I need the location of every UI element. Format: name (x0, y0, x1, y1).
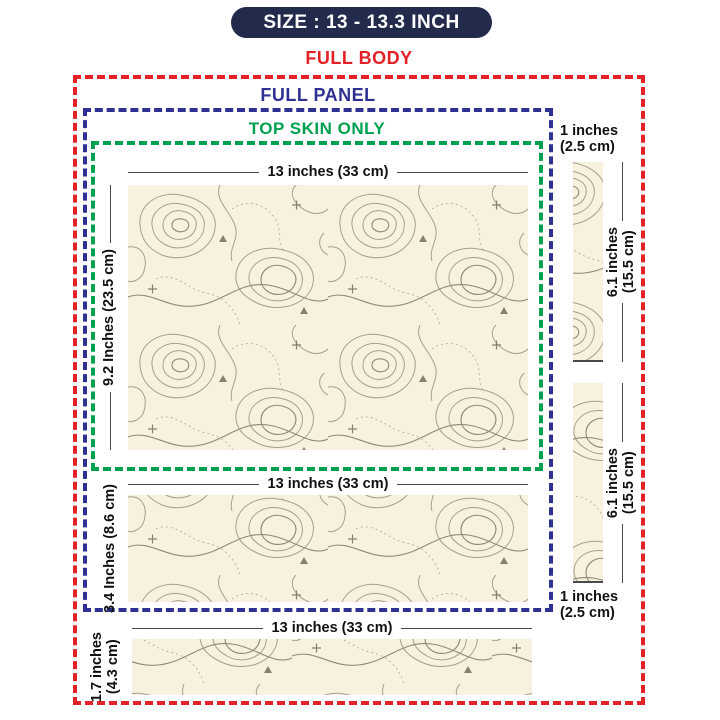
top-panel-height-dimension: 9.2 Inches (23.5 cm) (95, 185, 125, 450)
dimension-line (401, 628, 532, 629)
size-badge: SIZE : 13 - 13.3 INCH (231, 7, 492, 38)
top-panel-height-label: 9.2 Inches (23.5 cm) (102, 249, 118, 386)
dimension-line (128, 172, 259, 173)
bottom-skin-panel (132, 639, 532, 695)
top-skin-label: TOP SKIN ONLY (91, 119, 543, 139)
side-strip-bottom-width-label: 1 inches (2.5 cm) (560, 589, 618, 621)
dimension-line (397, 172, 528, 173)
middle-panel-height-label: 3.4 Inches (8.6 cm) (103, 484, 119, 613)
top-skin-panel (128, 185, 528, 450)
dimension-line (622, 162, 623, 221)
full-body-label: FULL BODY (73, 48, 645, 69)
dimension-line (128, 484, 259, 485)
middle-panel-width-dimension: 13 inches (33 cm) (128, 476, 528, 492)
middle-panel-width-label: 13 inches (33 cm) (268, 476, 389, 492)
bottom-panel-height-dimension: 1.7 inches (4.3 cm) (86, 631, 126, 703)
side-strip-bottom (573, 383, 603, 583)
side-strip-top-height-label: 6.1 inches (15.5 cm) (606, 227, 638, 297)
dimension-line (622, 383, 623, 442)
topo-map-texture (128, 495, 528, 602)
topo-map-texture (132, 639, 532, 695)
dimension-line (622, 524, 623, 583)
bottom-panel-height-label: 1.7 inches (4.3 cm) (90, 632, 122, 702)
dimension-line (622, 303, 623, 362)
topo-map-texture (573, 162, 603, 360)
size-badge-label: SIZE : 13 - 13.3 INCH (263, 12, 459, 34)
middle-skin-panel (128, 495, 528, 602)
dimension-line (110, 185, 111, 243)
side-strip-bottom-height-dimension: 6.1 inches (15.5 cm) (603, 383, 641, 583)
side-strip-top-width-label: 1 inches (2.5 cm) (560, 123, 618, 155)
bottom-panel-width-dimension: 13 inches (33 cm) (132, 620, 532, 636)
top-panel-width-label: 13 inches (33 cm) (268, 164, 389, 180)
topo-map-texture (573, 383, 603, 581)
top-panel-width-dimension: 13 inches (33 cm) (128, 164, 528, 180)
topo-map-texture (128, 185, 528, 450)
bottom-panel-width-label: 13 inches (33 cm) (272, 620, 393, 636)
dimension-line (132, 628, 263, 629)
skin-size-diagram: SIZE : 13 - 13.3 INCH FULL BODY FULL PAN… (0, 0, 720, 720)
side-strip-top-height-dimension: 6.1 inches (15.5 cm) (603, 162, 641, 362)
dimension-line (397, 484, 528, 485)
side-strip-bottom-height-label: 6.1 inches (15.5 cm) (606, 448, 638, 518)
dimension-line (110, 392, 111, 450)
middle-panel-height-dimension: 3.4 Inches (8.6 cm) (96, 495, 126, 602)
full-panel-label: FULL PANEL (83, 85, 553, 106)
side-strip-top (573, 162, 603, 362)
